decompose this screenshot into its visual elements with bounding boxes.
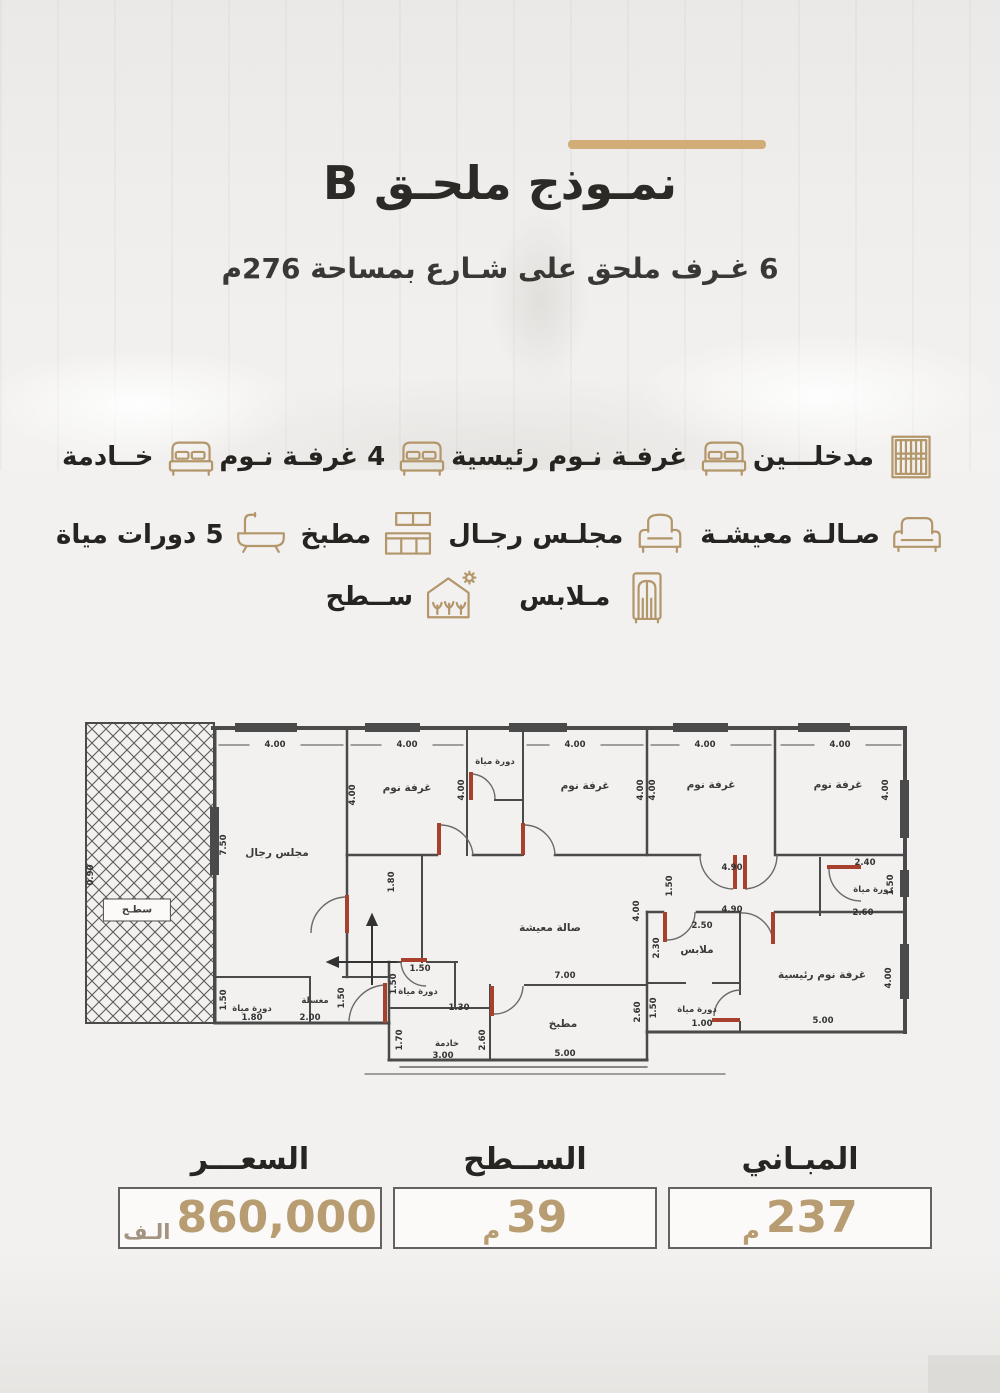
plan-dimension-label: 4.00 — [348, 785, 358, 806]
plan-dimension-label: 2.30 — [652, 938, 662, 959]
plan-dimension-label: 4.00 — [265, 740, 286, 750]
summary-buildings-box: 237 م — [668, 1187, 932, 1249]
plan-dimension-label: 4.00 — [830, 740, 851, 750]
summary-roof-value: 39 — [506, 1196, 567, 1240]
roof-icon — [423, 570, 477, 624]
feature-label: ســطح — [326, 582, 413, 612]
plan-dimension-label: 1.80 — [387, 872, 397, 893]
plan-dimension-label: 2.50 — [692, 921, 713, 931]
plan-dimension-label: 3.00 — [433, 1051, 454, 1061]
feature-label: 5 دورات مياة — [56, 520, 224, 550]
feature-label: مطبخ — [301, 520, 372, 550]
summary-buildings-value: 237 — [766, 1196, 858, 1240]
plan-dimension-label: 4.00 — [457, 780, 467, 801]
summary-roof-label: الســطح — [393, 1142, 657, 1177]
door-icon — [884, 430, 938, 484]
kitchen-icon — [381, 508, 435, 562]
plan-dimension-label: 7.50 — [219, 835, 229, 856]
plan-dimension-label: 1.50 — [337, 988, 347, 1009]
plan-room-label: غرفة نوم — [687, 779, 736, 791]
feature-wardrobe: مـلابس — [519, 570, 674, 624]
summary-price-unit: الـف — [123, 1222, 170, 1243]
summary-buildings-label: المبـاني — [668, 1142, 932, 1177]
feature-bed: غرفـة نـوم رئيسية — [451, 430, 751, 484]
plan-dimension-label: 4.90 — [722, 905, 743, 915]
feature-label: مـلابس — [519, 582, 610, 612]
armchair-icon — [633, 508, 687, 562]
page-subtitle: 6 غـرف ملحق على شـارع بمساحة 276م — [0, 252, 1000, 285]
plan-dimension-label: 0.90 — [86, 865, 96, 886]
plan-dimension-label: 4.00 — [884, 968, 894, 989]
plan-room-label: ملابس — [680, 944, 713, 956]
plan-room-label: دورة مياة — [398, 987, 437, 997]
plan-dimension-label: 4.00 — [397, 740, 418, 750]
features-row-3: مـلابسســطح — [0, 570, 1000, 624]
plan-dimension-label: 7.00 — [555, 971, 576, 981]
plan-dimension-label: 1.80 — [242, 1013, 263, 1023]
bed-icon — [395, 430, 449, 484]
plan-dimension-label: 4.90 — [722, 863, 743, 873]
plan-room-label: دورة مياة — [677, 1005, 716, 1015]
plan-dimension-label: 1.00 — [692, 1019, 713, 1029]
summary-roof: الســطح 39 م — [393, 1142, 657, 1249]
plan-dimension-label: 1.50 — [886, 875, 896, 896]
feature-label: مجلـس رجـال — [448, 520, 623, 550]
plan-dimension-label: 2.60 — [478, 1030, 488, 1051]
plan-dimension-label: 2.60 — [853, 908, 874, 918]
feature-bed: خــادمة — [62, 430, 217, 484]
summary-row: المبـاني 237 م الســطح 39 م السعـــر 860… — [0, 1142, 1000, 1249]
plan-dimension-label: 1.50 — [219, 990, 229, 1011]
plan-room-label: غرفة نوم — [561, 780, 610, 792]
plan-room-label: غرفة نوم — [814, 779, 863, 791]
summary-price-label: السعـــر — [118, 1142, 382, 1177]
plan-dimension-label: 4.00 — [565, 740, 586, 750]
summary-roof-box: 39 م — [393, 1187, 657, 1249]
plan-terrace-label: سطـح — [103, 899, 171, 922]
summary-price: السعـــر 860,000 الـف — [118, 1142, 382, 1249]
bed-icon — [697, 430, 751, 484]
feature-bathtub: 5 دورات مياة — [56, 508, 288, 562]
plan-dimension-label: 4.00 — [632, 901, 642, 922]
plan-dimension-label: 1.70 — [395, 1030, 405, 1051]
summary-price-box: 860,000 الـف — [118, 1187, 382, 1249]
plan-room-label: مغسلة — [301, 996, 328, 1006]
floor-plan: سطـحمجلس رجالغرفة نومغرفة نومغرفة نومغرف… — [85, 722, 915, 1087]
plan-room-label: غرفة نوم رئيسية — [778, 969, 866, 981]
feature-label: غرفـة نـوم رئيسية — [451, 442, 687, 472]
feature-label: صـالـة معيشـة — [700, 520, 880, 550]
plan-dimension-label: 2.00 — [300, 1013, 321, 1023]
plan-dimension-label: 2.40 — [855, 858, 876, 868]
feature-kitchen: مطبخ — [301, 508, 436, 562]
plan-room-label: دورة مياة — [475, 757, 514, 767]
summary-roof-unit: م — [483, 1219, 501, 1243]
plan-dimension-label: 4.00 — [881, 780, 891, 801]
feature-bed: 4 غرفـة نـوم — [219, 430, 449, 484]
plan-dimension-label: 5.00 — [813, 1016, 834, 1026]
plan-room-label: مطبخ — [549, 1018, 578, 1030]
plan-room-label: صالة معيشة — [519, 922, 581, 934]
plan-dimension-label: 4.00 — [636, 780, 646, 801]
page-title: نمـوذج ملحـق B — [0, 156, 1000, 210]
plan-dimension-label: 4.00 — [648, 780, 658, 801]
feature-label: خــادمة — [62, 442, 153, 472]
plan-dimension-label: 1.50 — [389, 974, 399, 995]
property-flyer: { "page": { "accent": "#b3966a", "divide… — [0, 0, 1000, 1393]
feature-sofa: صـالـة معيشـة — [700, 508, 944, 562]
plan-dimension-label: 1.50 — [410, 964, 431, 974]
background-floor-shade — [0, 1253, 1000, 1393]
features-row-2: صـالـة معيشـةمجلـس رجـالمطبخ5 دورات مياة — [0, 508, 1000, 562]
features-row-1: مدخلـــينغرفـة نـوم رئيسية4 غرفـة نـومخـ… — [0, 430, 1000, 484]
plan-dimension-label: 5.00 — [555, 1049, 576, 1059]
summary-buildings-unit: م — [742, 1219, 760, 1243]
plan-dimension-label: 1.50 — [649, 998, 659, 1019]
plan-dimension-label: 4.00 — [695, 740, 716, 750]
plan-dimension-label: 1.30 — [449, 1003, 470, 1013]
sofa-icon — [890, 508, 944, 562]
bed-icon — [164, 430, 218, 484]
plan-room-label: غرفة نوم — [383, 782, 432, 794]
gold-divider — [568, 140, 766, 149]
feature-label: 4 غرفـة نـوم — [219, 442, 385, 472]
summary-price-value: 860,000 — [176, 1196, 376, 1240]
plan-room-label: خادمة — [435, 1039, 459, 1049]
feature-label: مدخلـــين — [753, 442, 874, 472]
background-corner-patch — [928, 1355, 1000, 1393]
wardrobe-icon — [620, 570, 674, 624]
plan-dimension-label: 1.50 — [665, 876, 675, 897]
feature-armchair: مجلـس رجـال — [448, 508, 687, 562]
feature-door: مدخلـــين — [753, 430, 938, 484]
bathtub-icon — [234, 508, 288, 562]
summary-section: المبـاني 237 م الســطح 39 م السعـــر 860… — [0, 1142, 1000, 1249]
plan-room-label: مجلس رجال — [245, 847, 309, 859]
floor-plan-labels: سطـحمجلس رجالغرفة نومغرفة نومغرفة نومغرف… — [85, 722, 915, 1087]
background-photo — [0, 0, 1000, 470]
feature-roof: ســطح — [326, 570, 477, 624]
summary-buildings: المبـاني 237 م — [668, 1142, 932, 1249]
plan-dimension-label: 2.60 — [633, 1002, 643, 1023]
